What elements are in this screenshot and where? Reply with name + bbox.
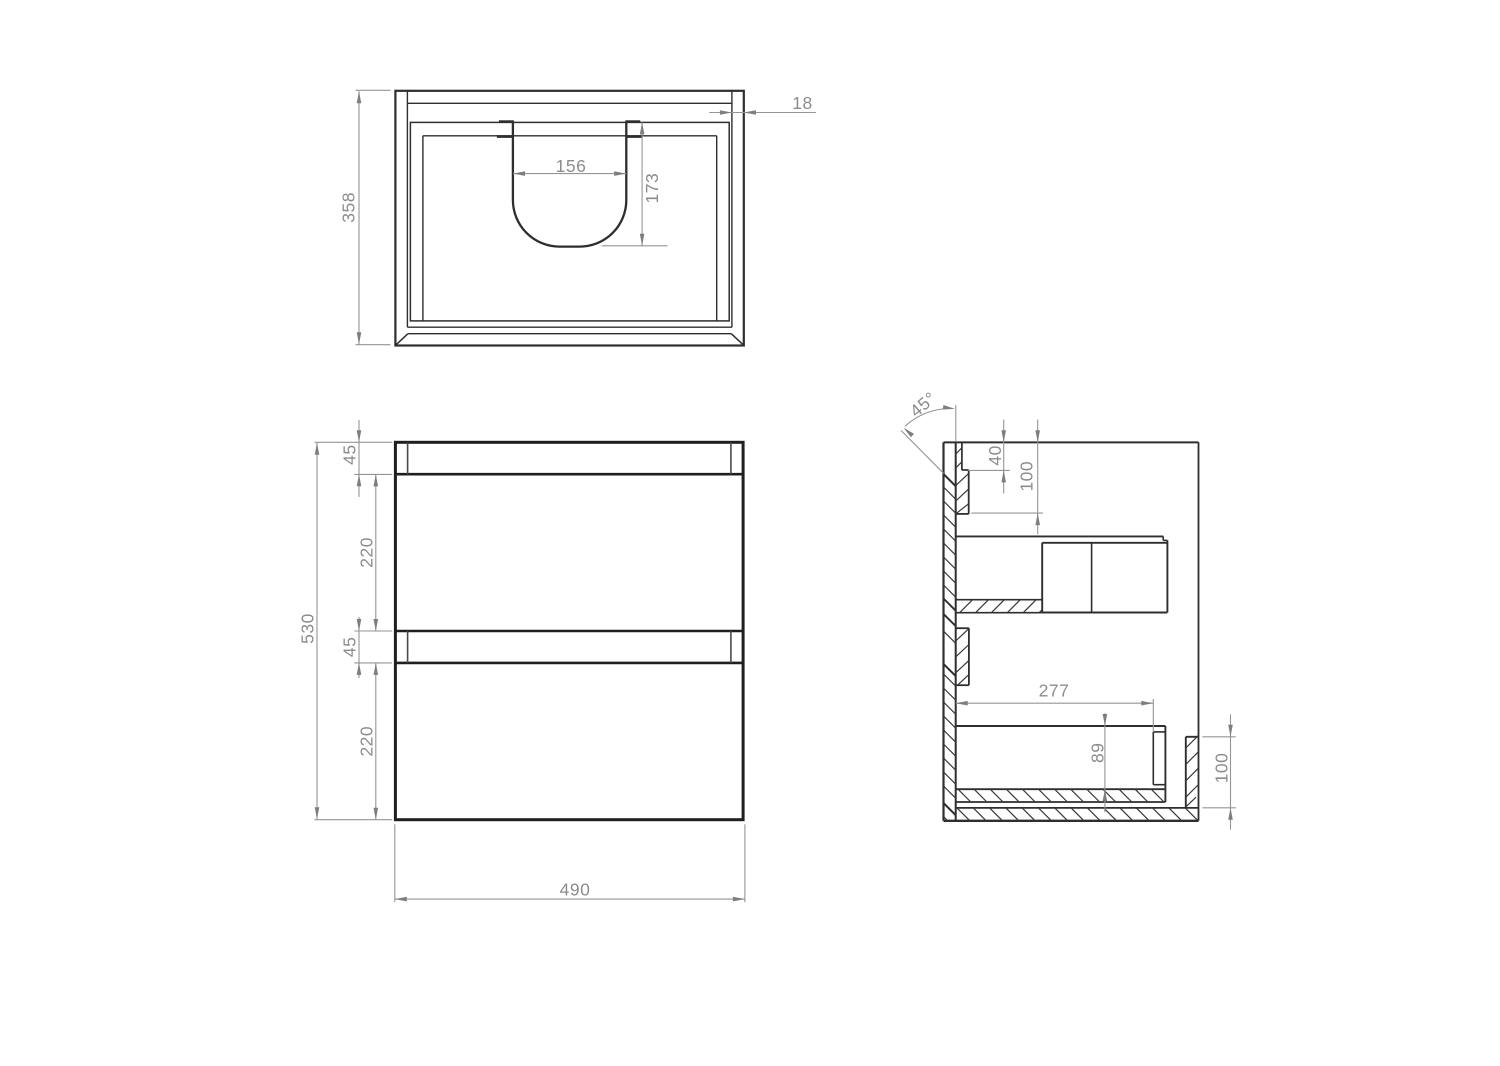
- svg-text:100: 100: [1017, 461, 1037, 492]
- svg-text:490: 490: [560, 880, 591, 900]
- svg-text:277: 277: [1039, 681, 1070, 701]
- svg-text:40: 40: [985, 445, 1005, 465]
- svg-text:220: 220: [357, 726, 377, 757]
- svg-text:45: 45: [339, 637, 359, 657]
- svg-text:100: 100: [1211, 753, 1231, 784]
- svg-text:89: 89: [1087, 743, 1107, 763]
- svg-text:530: 530: [298, 613, 318, 644]
- svg-text:220: 220: [357, 537, 377, 568]
- svg-text:156: 156: [556, 156, 587, 176]
- svg-text:45: 45: [339, 444, 359, 464]
- svg-text:358: 358: [338, 192, 358, 223]
- svg-text:173: 173: [642, 173, 662, 204]
- svg-text:18: 18: [792, 93, 812, 113]
